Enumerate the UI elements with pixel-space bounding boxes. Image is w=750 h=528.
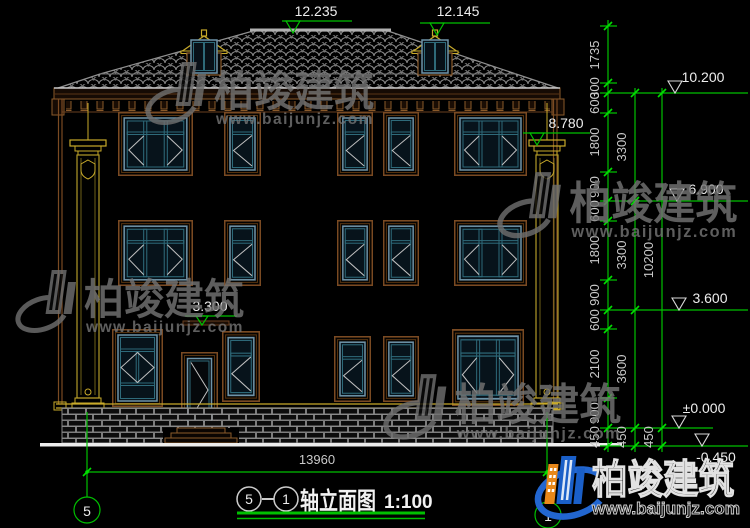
window bbox=[335, 337, 371, 401]
title-axis-to: 1 bbox=[282, 491, 290, 507]
brand-logo: 柏竣建筑 www.baijunjz.com bbox=[532, 456, 740, 525]
axis-bubble-left: 5 bbox=[74, 497, 100, 523]
dim-label: 600 bbox=[587, 92, 602, 114]
dim-label: 3300 bbox=[614, 241, 629, 270]
wall-left-edge bbox=[59, 99, 63, 404]
elevation-label: 12.235 bbox=[295, 3, 338, 19]
column-right bbox=[529, 103, 565, 409]
window bbox=[384, 337, 419, 401]
watermark bbox=[495, 172, 737, 242]
dim-label: 900 bbox=[587, 284, 602, 306]
watermark bbox=[13, 270, 244, 337]
elevation-drawing: 柏竣建筑 www.baijunjz.com bbox=[0, 0, 750, 528]
window bbox=[113, 330, 163, 407]
brand-logo-mark: 柏竣建筑 www.baijunjz.com bbox=[532, 456, 740, 525]
column-left bbox=[70, 103, 106, 409]
elevation-label: ±0.000 bbox=[683, 400, 726, 416]
dim-label: 1800 bbox=[587, 128, 602, 157]
window bbox=[223, 332, 259, 401]
logo-building-icon bbox=[544, 456, 586, 504]
elevation-dormer: 12.145 bbox=[420, 3, 490, 35]
elevation-ground: ±0.000 bbox=[672, 400, 726, 428]
dim-label: 10200 bbox=[641, 242, 656, 278]
window bbox=[338, 221, 373, 285]
title-text: 轴立面图 bbox=[300, 487, 376, 515]
window bbox=[455, 113, 527, 176]
logo-name: 柏竣建筑 bbox=[592, 458, 734, 502]
total-width-label: 13960 bbox=[299, 452, 335, 467]
title-axis-from: 5 bbox=[245, 491, 253, 507]
dormer-right bbox=[412, 30, 458, 75]
elevation-level2: 3.600 bbox=[672, 290, 728, 310]
dim-label: 3300 bbox=[614, 133, 629, 162]
window bbox=[384, 221, 419, 285]
title-scale: 1:100 bbox=[384, 492, 433, 513]
elevation-eave: 10.200 bbox=[668, 69, 725, 93]
drawing-title: 5 1 轴立面图 1:100 bbox=[237, 487, 433, 519]
window bbox=[384, 113, 419, 176]
dim-label: 1735 bbox=[587, 41, 602, 70]
elevation-label: 8.780 bbox=[548, 115, 583, 131]
elevation-label: 3.600 bbox=[692, 290, 727, 306]
dim-label: 450 bbox=[641, 426, 656, 448]
dim-label: 600 bbox=[587, 309, 602, 331]
dim-labels-outer: 10200 450 bbox=[641, 242, 656, 448]
elevation-label: 12.145 bbox=[437, 3, 480, 19]
dim-label: 3600 bbox=[614, 355, 629, 384]
entry-steps bbox=[163, 428, 239, 443]
ground-line bbox=[40, 443, 622, 447]
elevation-label: 10.200 bbox=[682, 69, 725, 85]
cad-elevation-viewport: 柏竣建筑 www.baijunjz.com bbox=[0, 0, 750, 528]
logo-url: www.baijunjz.com bbox=[591, 500, 740, 518]
window bbox=[455, 221, 527, 285]
axis-number: 5 bbox=[83, 503, 91, 519]
dim-label: 2100 bbox=[587, 350, 602, 379]
